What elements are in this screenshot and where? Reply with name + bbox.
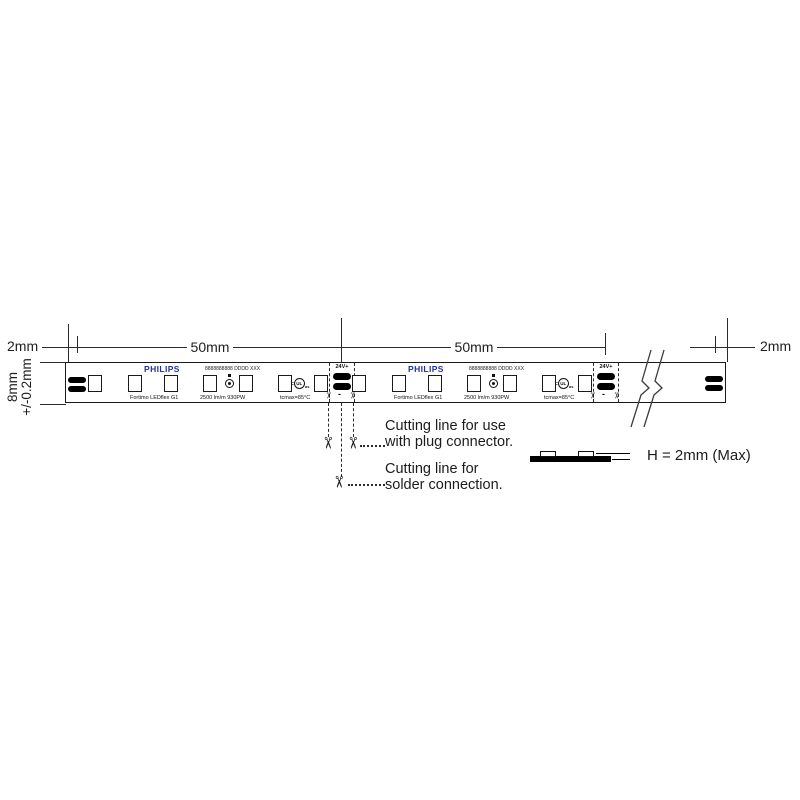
cut-minus-mark: -: [338, 389, 341, 399]
ul-suffix: us: [569, 384, 574, 389]
scissors-icon: ✂: [319, 436, 335, 449]
height-value: 8mm: [6, 326, 20, 448]
cut-solder-pad-minus: [597, 383, 615, 391]
solder-cut-note: Cutting line for solder connection.: [385, 462, 503, 493]
left-connector-pad-minus: [68, 386, 86, 393]
ul-circle: UL: [558, 378, 569, 389]
solder-cut-dash: [341, 403, 342, 477]
plug-cut-dash-right: [353, 403, 354, 437]
test-point-icon: [489, 379, 498, 388]
cut-mark-left: ✂: [588, 390, 596, 400]
ul-suffix: us: [305, 384, 310, 389]
test-point-icon: [225, 379, 234, 388]
plug-cut-leader: [360, 445, 385, 447]
dim-label-height: 8mm +/-0.2mm: [6, 326, 42, 448]
plug-cut-note: Cutting line for use with plug connector…: [385, 419, 513, 450]
dimension-line-top: [42, 347, 605, 348]
tc-spec-text: tcmax=85°C: [280, 395, 310, 401]
profile-height-label: H = 2mm (Max): [647, 448, 751, 464]
led-pad: [503, 375, 517, 392]
profile-led-bump: [540, 451, 556, 457]
tick-right-2mm: [715, 336, 716, 353]
led-pad: [203, 375, 217, 392]
serial-text: 8888888888 DDDD XXX: [469, 366, 524, 372]
dim-label-pitch-1: 50mm: [187, 339, 233, 355]
extension-line-right-edge: [727, 318, 728, 362]
cut-mark-right: ✂: [612, 390, 620, 400]
led-pad: [128, 375, 142, 392]
tick-height-top: [40, 362, 66, 363]
plug-cut-dash-left: [328, 403, 329, 437]
test-point-dot: [492, 374, 495, 377]
scissors-icon: ✂: [323, 392, 332, 400]
led-pad: [88, 375, 102, 392]
extension-line-cut1: [341, 318, 342, 362]
cut-solder-pad-plus: [333, 373, 351, 381]
led-strip-body: PHILIPS 8888888888 DDDD XXX Fortimo LEDf…: [65, 362, 726, 403]
solder-cut-note-line1: Cutting line for: [385, 462, 503, 478]
ul-circle: UL: [294, 378, 305, 389]
led-pad: [428, 375, 442, 392]
right-connector-pad-minus: [705, 385, 723, 392]
plug-cut-scissors-right: ✂: [345, 434, 358, 452]
extension-line-left-edge: [68, 324, 69, 362]
ul-certification-icon: c UL us: [555, 378, 573, 389]
height-tolerance: +/-0.2mm: [20, 326, 34, 448]
scissors-icon: ✂: [587, 392, 596, 400]
profile-strip-bar: [530, 456, 611, 462]
flux-spec-text: 2500 lm/m 930PW: [464, 395, 509, 401]
serial-text: 8888888888 DDDD XXX: [205, 366, 260, 372]
cut-solder-pad-minus: [333, 383, 351, 391]
tick-height-bottom: [40, 404, 66, 405]
left-connector-pad-plus: [68, 377, 86, 384]
led-pad: [467, 375, 481, 392]
dim-label-right-2mm: 2mm: [757, 338, 794, 354]
philips-logo: PHILIPS: [144, 364, 180, 374]
flux-spec-text: 2500 lm/m 930PW: [200, 395, 245, 401]
profile-led-bump: [578, 451, 594, 457]
scissors-icon: ✂: [611, 392, 620, 400]
plug-cut-note-line1: Cutting line for use: [385, 419, 513, 435]
tick-left-2mm: [77, 336, 78, 353]
ul-certification-icon: c UL us: [291, 378, 309, 389]
test-point-dot: [228, 374, 231, 377]
plug-cut-scissors-left: ✂: [320, 434, 333, 452]
product-name-text: Fortimo LEDflex G1: [394, 395, 442, 401]
led-pad: [239, 375, 253, 392]
scissors-icon: ✂: [330, 475, 346, 488]
scissors-icon: ✂: [344, 436, 360, 449]
led-pad: [542, 375, 556, 392]
solder-cut-scissors: ✂: [331, 473, 344, 491]
philips-logo: PHILIPS: [408, 364, 444, 374]
cut-voltage-label: 24V+: [330, 364, 354, 370]
cut-solder-pad-plus: [597, 373, 615, 381]
cut-voltage-label: 24V+: [594, 364, 618, 370]
tc-spec-text: tcmax=85°C: [544, 395, 574, 401]
solder-cut-leader: [348, 484, 385, 486]
led-pad: [392, 375, 406, 392]
led-strip-dimension-drawing: 2mm 50mm 50mm 2mm 8mm +/-0.2mm PHILIPS 8…: [0, 0, 800, 800]
strip-segment-2: PHILIPS 8888888888 DDDD XXX Fortimo LEDf…: [352, 363, 620, 402]
led-pad: [278, 375, 292, 392]
profile-liner-bottom: [612, 459, 630, 461]
plug-cut-note-line2: with plug connector.: [385, 435, 513, 451]
right-connector-pad-plus: [705, 376, 723, 383]
led-pad: [352, 375, 366, 392]
dim-label-pitch-2: 50mm: [451, 339, 497, 355]
cut-mark-left: ✂: [324, 390, 332, 400]
strip-segment-1: PHILIPS 8888888888 DDDD XXX Fortimo LEDf…: [88, 363, 356, 402]
solder-cut-note-line2: solder connection.: [385, 478, 503, 494]
tick-cut2: [605, 333, 606, 355]
product-name-text: Fortimo LEDflex G1: [130, 395, 178, 401]
profile-liner-top: [596, 453, 630, 455]
dimension-line-top-right: [690, 347, 755, 348]
cut-minus-mark: -: [602, 389, 605, 399]
led-pad: [164, 375, 178, 392]
